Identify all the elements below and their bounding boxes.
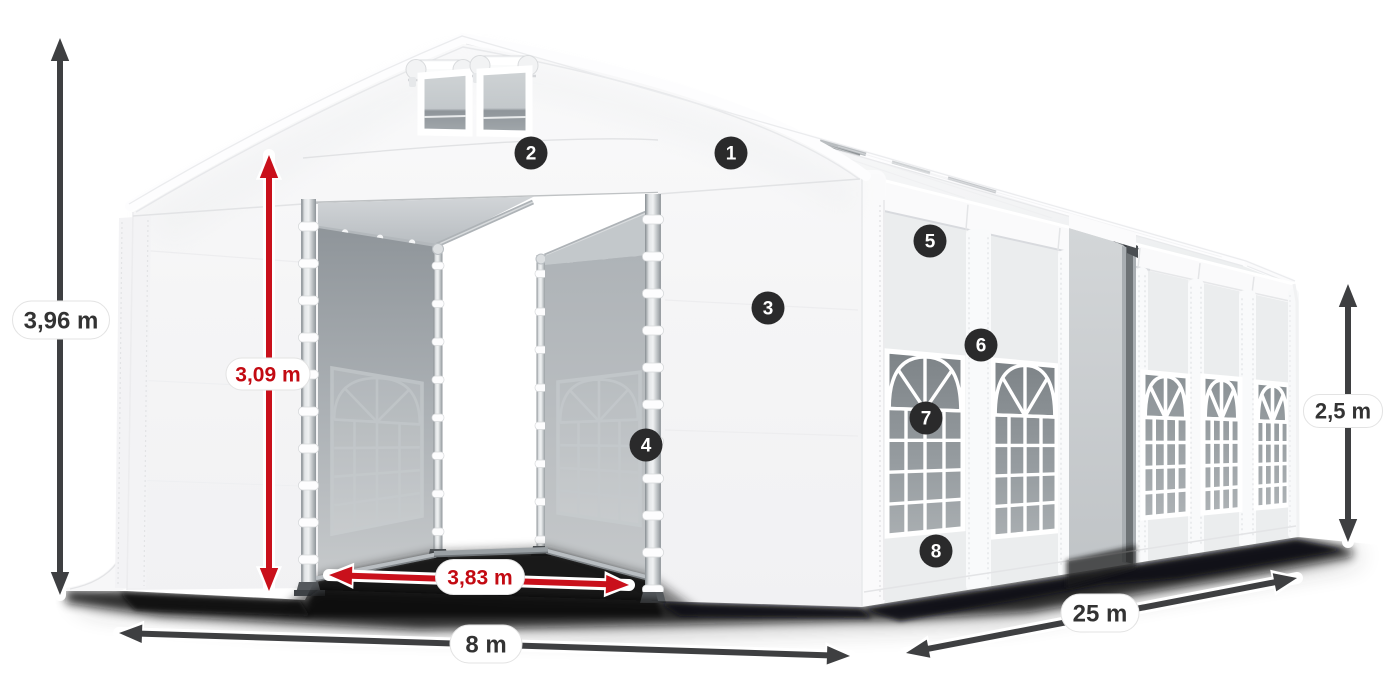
svg-text:7: 7 — [921, 409, 932, 430]
svg-text:4: 4 — [641, 436, 652, 457]
svg-text:3: 3 — [763, 299, 774, 320]
svg-text:3,09 m: 3,09 m — [235, 363, 300, 386]
svg-text:3,83 m: 3,83 m — [447, 566, 512, 589]
svg-text:3,96 m: 3,96 m — [24, 307, 99, 334]
svg-text:2,5 m: 2,5 m — [1315, 399, 1371, 424]
svg-text:25 m: 25 m — [1073, 600, 1128, 627]
svg-text:6: 6 — [976, 336, 987, 357]
svg-text:8: 8 — [931, 542, 942, 563]
svg-text:2: 2 — [526, 144, 537, 165]
svg-text:8 m: 8 m — [465, 631, 506, 658]
svg-text:5: 5 — [925, 232, 936, 253]
svg-text:1: 1 — [726, 144, 737, 165]
